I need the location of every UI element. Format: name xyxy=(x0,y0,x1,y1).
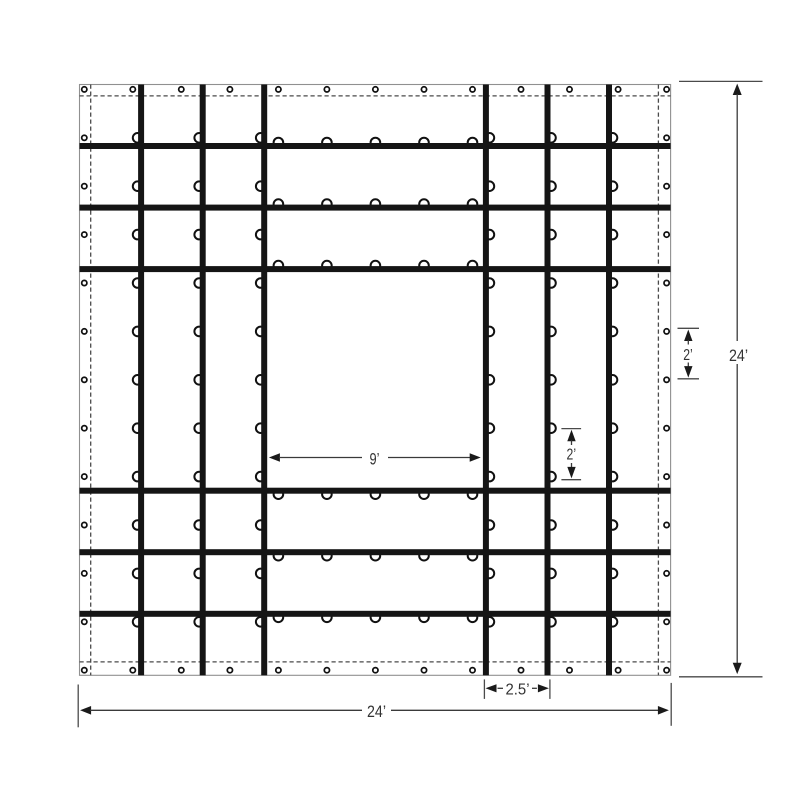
svg-text:9’: 9’ xyxy=(370,450,380,469)
svg-text:24’: 24’ xyxy=(367,702,386,721)
svg-text:2’: 2’ xyxy=(567,447,577,464)
svg-text:2’: 2’ xyxy=(683,347,693,364)
svg-text:24’: 24’ xyxy=(729,346,748,365)
svg-text:2.5’: 2.5’ xyxy=(506,682,530,699)
